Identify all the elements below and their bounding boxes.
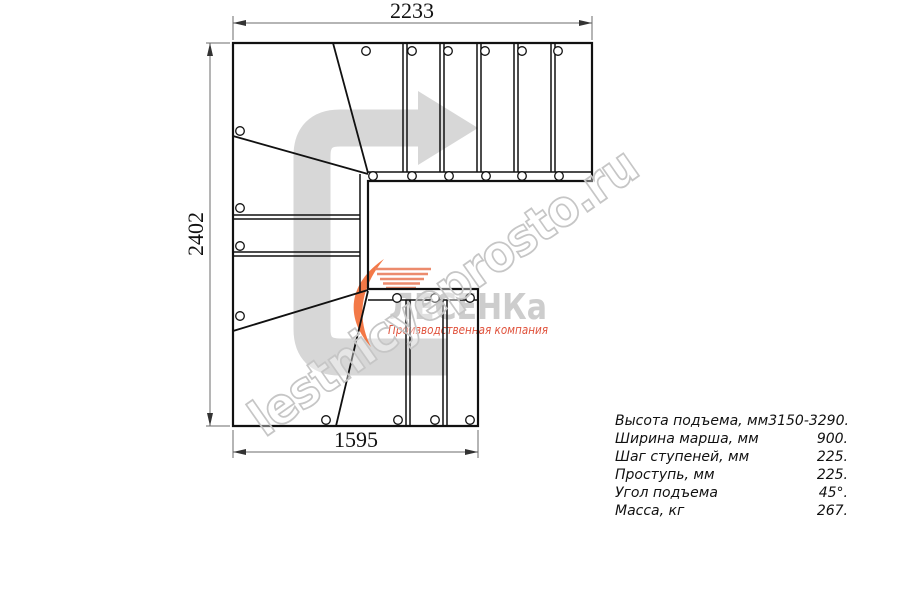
stair-drawing-page: ЛЕСЕНКа Производственная компания bbox=[0, 0, 900, 600]
spec-row-step: Шаг ступеней, мм 225. bbox=[615, 448, 848, 466]
dim-left-label: 2402 bbox=[183, 212, 208, 256]
dim-bottom-label: 1595 bbox=[334, 427, 378, 452]
spec-row-mass: Масса, кг 267. bbox=[615, 502, 848, 520]
spec-value: 225. bbox=[817, 448, 848, 466]
spec-value: 45°. bbox=[819, 484, 848, 502]
spec-label: Ширина марша, мм bbox=[615, 430, 759, 448]
spec-label: Угол подъема bbox=[615, 484, 718, 502]
spec-value: 900. bbox=[817, 430, 848, 448]
spec-row-flight-width: Ширина марша, мм 900. bbox=[615, 430, 848, 448]
dim-top-label: 2233 bbox=[390, 0, 434, 23]
dimension-left: 2402 bbox=[183, 43, 230, 426]
spec-label: Шаг ступеней, мм bbox=[615, 448, 749, 466]
spec-row-height: Высота подъема, мм 3150-3290. bbox=[615, 412, 848, 430]
spec-label: Высота подъема, мм bbox=[615, 412, 768, 430]
spec-value: 3150-3290. bbox=[768, 412, 849, 430]
spec-value: 225. bbox=[817, 466, 848, 484]
specs-table: Высота подъема, мм 3150-3290. Ширина мар… bbox=[615, 412, 848, 520]
spec-label: Проступь, мм bbox=[615, 466, 715, 484]
dimension-top: 2233 bbox=[233, 0, 592, 40]
spec-row-angle: Угол подъема 45°. bbox=[615, 484, 848, 502]
spec-row-tread: Проступь, мм 225. bbox=[615, 466, 848, 484]
spec-value: 267. bbox=[817, 502, 848, 520]
spec-label: Масса, кг bbox=[615, 502, 684, 520]
